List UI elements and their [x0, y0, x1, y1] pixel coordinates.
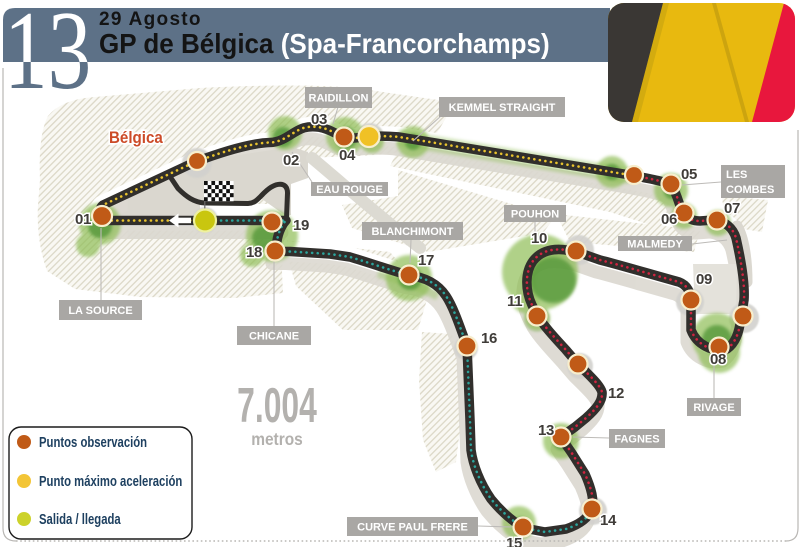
svg-text:CURVE PAUL FRERE: CURVE PAUL FRERE	[357, 522, 468, 534]
svg-text:19: 19	[293, 217, 309, 234]
svg-text:Punto máximo aceleración: Punto máximo aceleración	[39, 473, 182, 490]
svg-text:07: 07	[724, 200, 740, 217]
svg-text:02: 02	[283, 152, 299, 169]
svg-text:04: 04	[339, 147, 356, 164]
svg-text:KEMMEL STRAIGHT: KEMMEL STRAIGHT	[449, 102, 556, 114]
svg-text:RAIDILLON: RAIDILLON	[309, 93, 369, 105]
svg-text:06: 06	[661, 211, 677, 228]
svg-text:POUHON: POUHON	[511, 209, 559, 221]
svg-text:12: 12	[608, 385, 624, 402]
svg-text:29 Agosto: 29 Agosto	[99, 9, 202, 30]
svg-text:7.004: 7.004	[237, 378, 317, 433]
svg-text:14: 14	[600, 512, 617, 529]
svg-text:05: 05	[681, 166, 697, 183]
svg-text:03: 03	[311, 111, 327, 128]
svg-text:10: 10	[531, 230, 547, 247]
svg-text:EAU ROUGE: EAU ROUGE	[316, 184, 383, 196]
svg-text:18: 18	[246, 244, 262, 261]
svg-text:Puntos observación: Puntos observación	[39, 434, 147, 451]
svg-text:LES: LES	[726, 169, 747, 181]
svg-text:metros: metros	[251, 429, 303, 449]
svg-text:Salida / llegada: Salida / llegada	[39, 511, 121, 528]
svg-text:Bélgica: Bélgica	[109, 128, 164, 147]
svg-text:MALMEDY: MALMEDY	[627, 239, 683, 251]
svg-text:08: 08	[710, 351, 726, 368]
svg-text:GP de Bélgica (Spa-Francorcham: GP de Bélgica (Spa-Francorchamps)	[99, 28, 550, 59]
svg-text:COMBES: COMBES	[726, 184, 774, 196]
svg-text:17: 17	[418, 252, 434, 269]
svg-text:11: 11	[507, 293, 522, 310]
svg-text:01: 01	[75, 211, 91, 228]
svg-text:LA SOURCE: LA SOURCE	[68, 305, 132, 317]
svg-text:09: 09	[696, 271, 712, 288]
svg-text:16: 16	[481, 330, 497, 347]
svg-text:FAGNES: FAGNES	[614, 434, 659, 446]
svg-text:CHICANE: CHICANE	[249, 331, 299, 343]
svg-text:BLANCHIMONT: BLANCHIMONT	[372, 226, 454, 238]
svg-text:RIVAGE: RIVAGE	[693, 402, 734, 414]
svg-text:13: 13	[538, 422, 554, 439]
